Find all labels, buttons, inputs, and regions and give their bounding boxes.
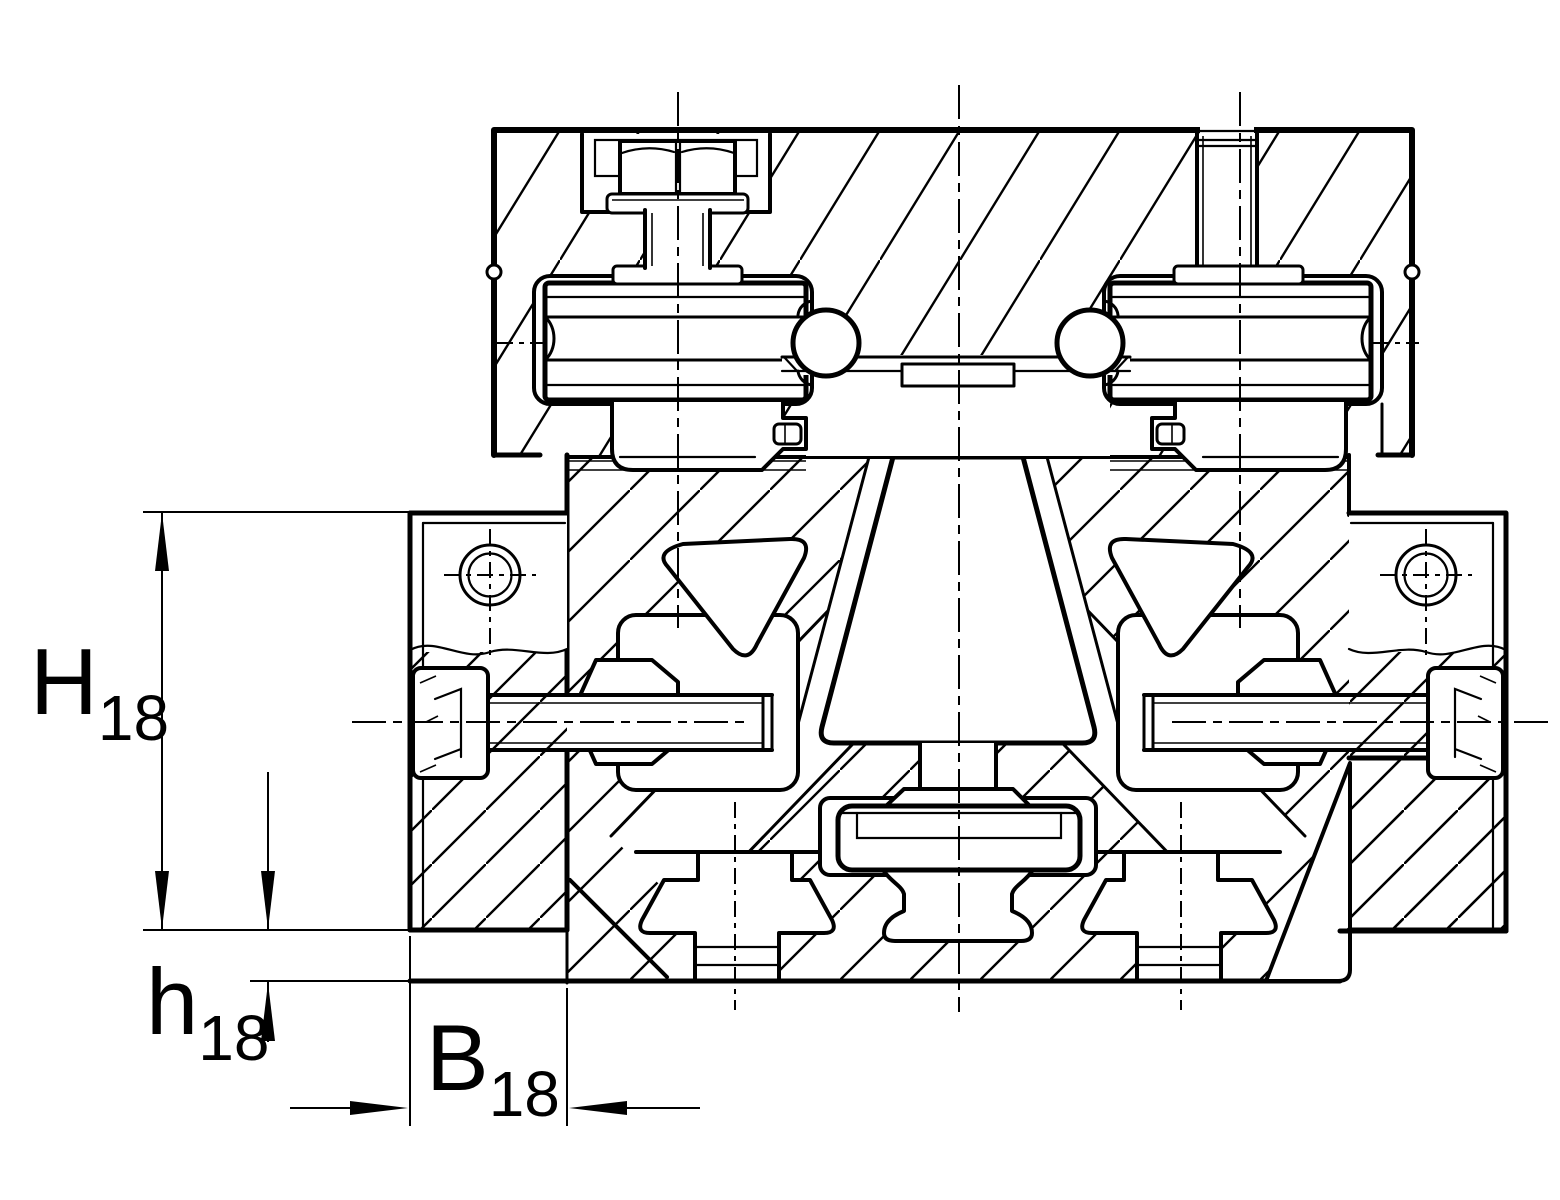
dimension-h: h18 <box>146 772 410 1074</box>
roller-guide-cross-section: H18 h18 B18 <box>0 0 1560 1200</box>
ball-left <box>793 310 859 376</box>
dim-h-sub: 18 <box>198 1002 269 1074</box>
eccentric-washer-right <box>1174 266 1303 284</box>
edge-notch-left <box>487 265 501 279</box>
ball-right <box>1057 310 1123 376</box>
dim-B-base: B <box>426 1005 489 1110</box>
drawing-canvas: H18 h18 B18 <box>0 0 1560 1200</box>
dim-label-B: B18 <box>426 1005 560 1130</box>
dim-h-base: h <box>146 949 198 1054</box>
dim-label-h: h18 <box>146 949 269 1074</box>
dim-H-base: H <box>30 629 98 734</box>
dim-B-sub: 18 <box>489 1058 560 1130</box>
edge-notch-right <box>1405 265 1419 279</box>
dim-label-H: H18 <box>30 629 169 754</box>
dim-H-sub: 18 <box>98 682 169 754</box>
